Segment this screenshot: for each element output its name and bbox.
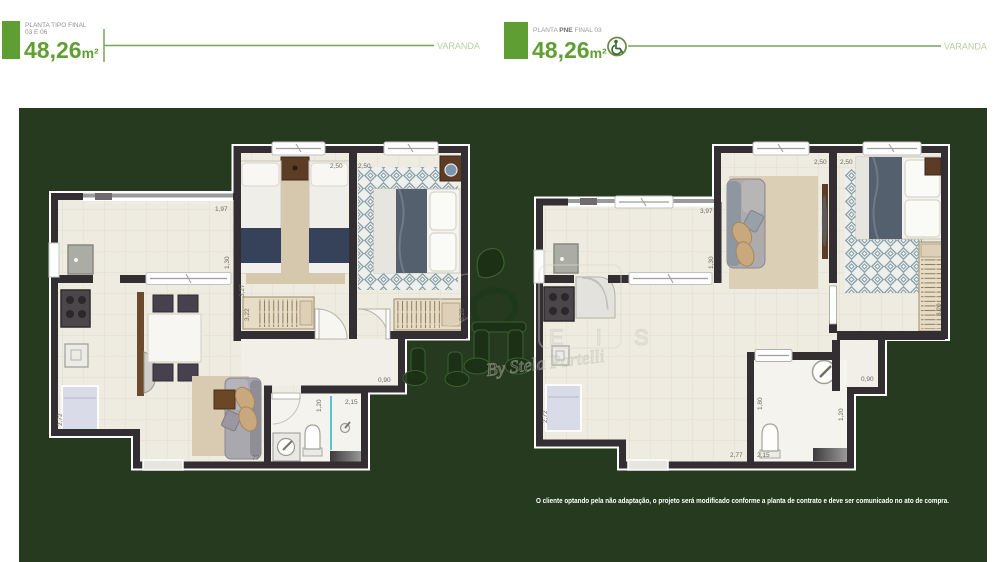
svg-text:1,80: 1,80 (757, 397, 764, 410)
svg-text:2,50: 2,50 (358, 163, 371, 170)
svg-text:VARANDA: VARANDA (437, 41, 480, 51)
svg-text:77: 77 (252, 455, 260, 462)
svg-text:48,26m²: 48,26m² (532, 37, 607, 63)
svg-text:PLANTA TIPO FINAL: PLANTA TIPO FINAL (25, 22, 87, 29)
svg-text:2,50: 2,50 (814, 159, 827, 166)
svg-text:1,20: 1,20 (316, 399, 323, 412)
svg-text:1,30: 1,30 (708, 256, 715, 269)
svg-text:1,30: 1,30 (224, 256, 231, 269)
svg-text:PLANTA PNE FINAL 03: PLANTA PNE FINAL 03 (533, 27, 602, 34)
svg-text:1,20: 1,20 (838, 408, 845, 421)
svg-text:0,90: 0,90 (861, 376, 874, 383)
svg-text:48,26m²: 48,26m² (24, 37, 99, 63)
svg-text:O cliente optando pela não ada: O cliente optando pela não adaptação, o … (536, 496, 949, 505)
svg-text:2,15: 2,15 (757, 452, 770, 459)
svg-text:3,20: 3,20 (936, 303, 943, 316)
svg-text:2,15: 2,15 (345, 399, 358, 406)
svg-text:2,72: 2,72 (542, 410, 549, 423)
svg-text:VARANDA: VARANDA (944, 42, 987, 52)
svg-text:3,27: 3,27 (239, 284, 246, 297)
svg-text:0,90: 0,90 (378, 377, 391, 384)
svg-text:E I S: E I S (549, 325, 662, 350)
svg-text:2,50: 2,50 (840, 159, 853, 166)
svg-text:2,50: 2,50 (330, 163, 343, 170)
svg-text:2,72: 2,72 (57, 413, 64, 426)
svg-text:03 E 06: 03 E 06 (25, 29, 48, 36)
svg-text:1,97: 1,97 (215, 206, 228, 213)
svg-text:2,77: 2,77 (730, 452, 743, 459)
svg-text:3,22: 3,22 (244, 308, 251, 321)
svg-text:3,97: 3,97 (700, 208, 713, 215)
